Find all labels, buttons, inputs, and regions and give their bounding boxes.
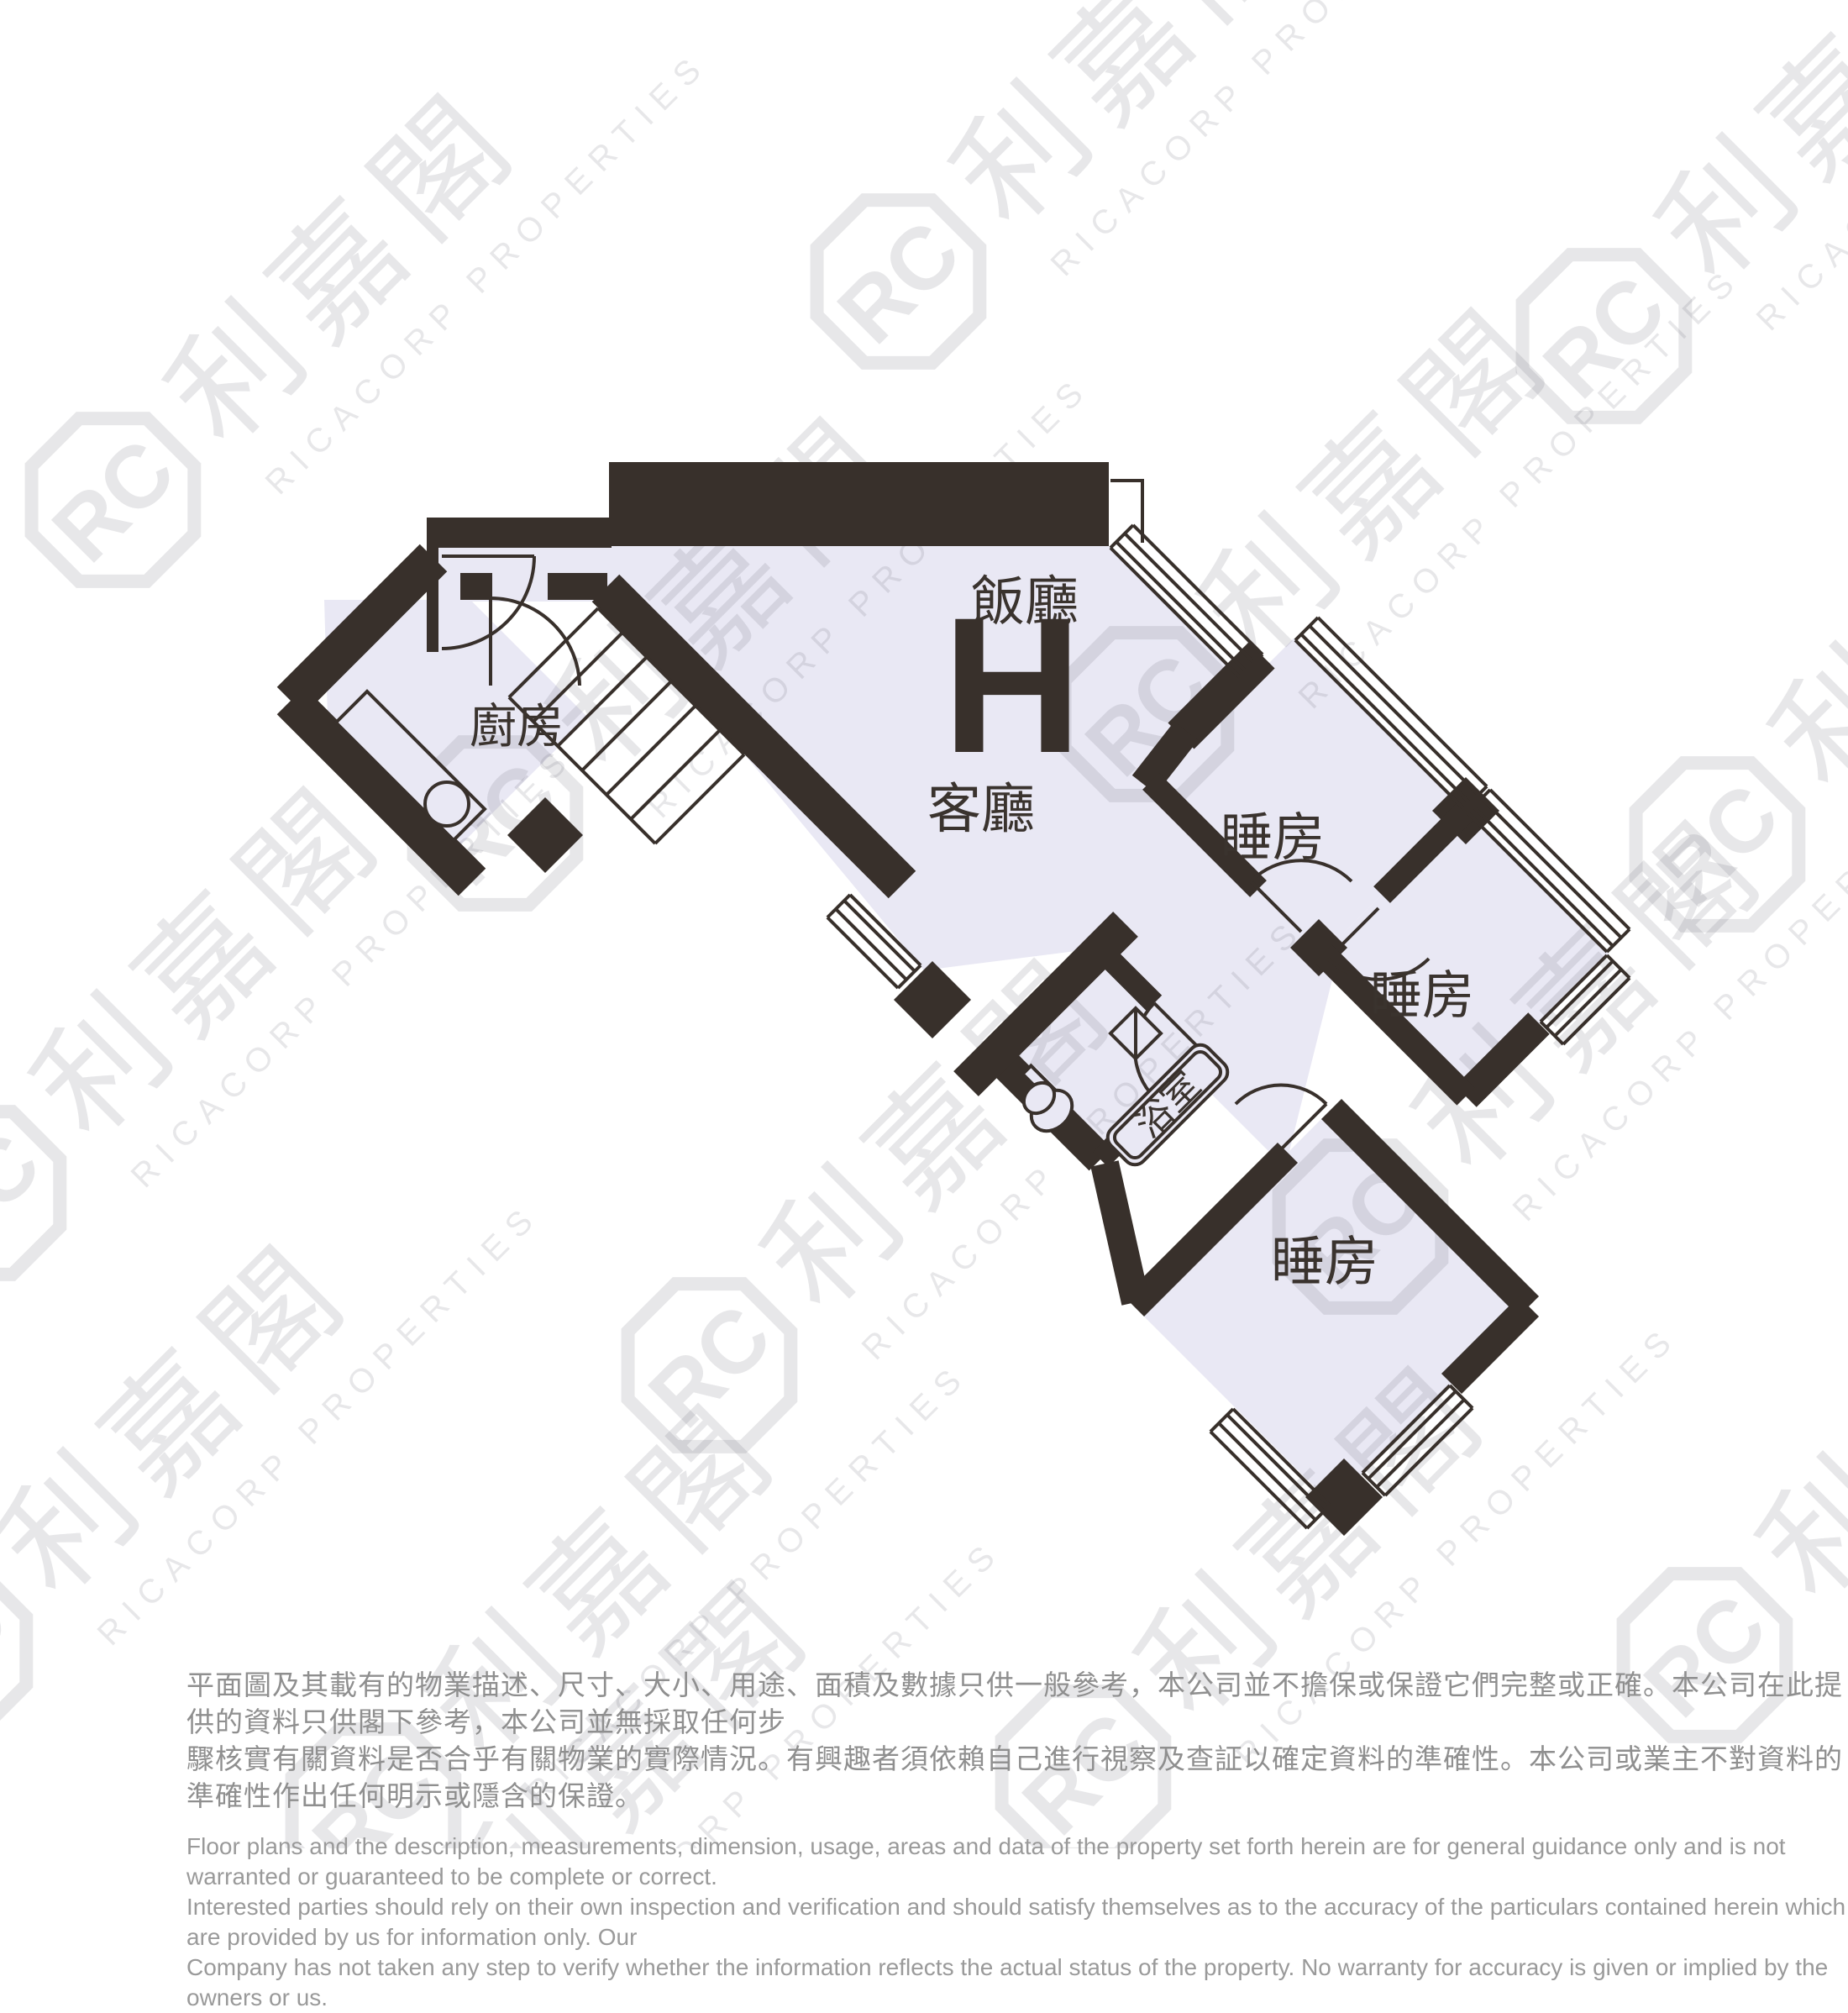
unit-letter-label: H — [942, 577, 1082, 793]
disclaimer-en-line3: Company has not taken any step to verify… — [186, 1953, 1848, 2013]
floor-plan-page: { "page": { "type": "property-floor-plan… — [0, 0, 1848, 1848]
room-label-kitchen: 廚房 — [470, 700, 564, 753]
watermark-brand-cjk: 利嘉閣 — [1746, 407, 1848, 813]
kitchen-sink-icon — [425, 782, 469, 826]
room-label-living: 客廳 — [927, 779, 1035, 839]
disclaimer-zh-line1: 平面圖及其載有的物業描述、尺寸、大小、用途、面積及數據只供一般參考，本公司並不擔… — [186, 1667, 1848, 1741]
wall-bath-to-bed3 — [1105, 1164, 1136, 1302]
wall-top-main — [609, 462, 1109, 546]
disclaimer-zh-line2: 驟核實有關資料是否合乎有關物業的實際情況。有興趣者須依賴自己進行視察及查証以確定… — [186, 1741, 1848, 1815]
wall-kitchen-north-a — [460, 573, 492, 600]
room-label-bedroom1: 睡房 — [1221, 809, 1325, 867]
disclaimer-en-line2: Interested parties should rely on their … — [186, 1892, 1848, 1953]
watermark-logo: RC利嘉閣RICACORP PROPERTIES — [783, 0, 1501, 426]
floor-plan-canvas: RC利嘉閣RICACORP PROPERTIESRC利嘉閣RICACORP PR… — [0, 0, 1848, 1848]
disclaimer-block: 平面圖及其載有的物業描述、尺寸、大小、用途、面積及數據只供一般參考，本公司並不擔… — [186, 1667, 1848, 2013]
wall-kitchen-north-b — [548, 573, 607, 600]
room-label-bedroom3: 睡房 — [1271, 1232, 1378, 1292]
wall-top-left — [427, 518, 612, 548]
watermark-brand-cjk: 利嘉閣 — [1734, 1217, 1848, 1624]
room-label-bedroom2: 睡房 — [1370, 967, 1474, 1025]
disclaimer-gap — [186, 1815, 1848, 1832]
disclaimer-en-line1: Floor plans and the description, measure… — [186, 1832, 1848, 1892]
